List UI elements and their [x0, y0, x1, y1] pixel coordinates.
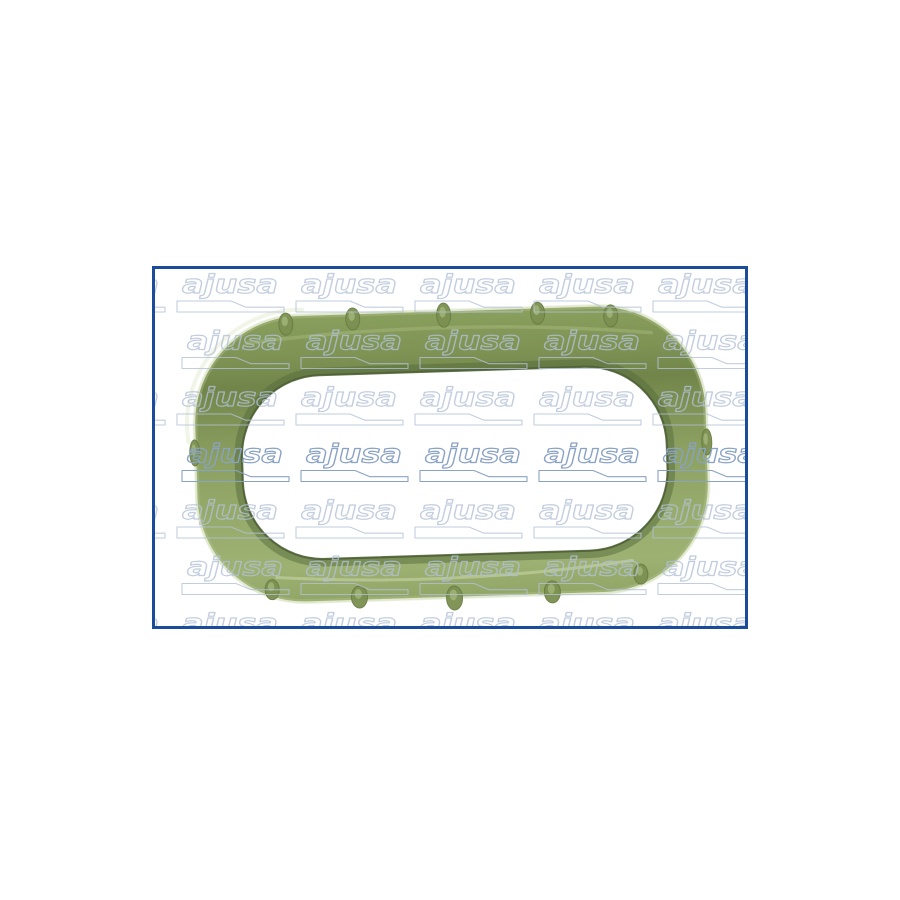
watermark-underline-swoosh	[539, 358, 646, 369]
watermark-underline-swoosh	[296, 527, 403, 538]
watermark-underline-swoosh	[658, 471, 745, 482]
watermark-underline-swoosh	[182, 471, 289, 482]
watermark-text: ajusa	[420, 383, 516, 413]
watermark-text: ajusa	[539, 609, 635, 626]
watermark-text: ajusa	[306, 327, 402, 357]
watermark-underline-swoosh	[177, 301, 284, 312]
watermark-underline-swoosh	[301, 358, 408, 369]
watermark-text: ajusa	[544, 440, 640, 470]
watermark-text: ajusa	[301, 383, 397, 413]
watermark-text: ajusa	[306, 440, 402, 470]
watermark-underline-swoosh	[415, 414, 522, 425]
ajusa-logo-watermark: ajusa	[301, 327, 408, 369]
watermark-underline-swoosh	[420, 358, 527, 369]
ajusa-logo-watermark: ajusa	[177, 383, 284, 425]
ajusa-logo-watermark: ajusa	[415, 270, 522, 312]
watermark-underline-swoosh	[415, 301, 522, 312]
watermark-underline-swoosh	[534, 301, 641, 312]
watermark-underline-swoosh	[155, 301, 165, 312]
ajusa-logo-watermark: ajusa	[155, 270, 165, 312]
ajusa-logo-watermark: ajusa	[155, 496, 165, 538]
watermark-text: ajusa	[182, 609, 278, 626]
ajusa-logo-watermark: ajusa	[415, 383, 522, 425]
ajusa-logo-watermark: ajusa	[296, 383, 403, 425]
watermark-text: ajusa	[539, 270, 635, 300]
ajusa-logo-watermark: ajusa	[182, 553, 289, 595]
watermark-text: ajusa	[658, 270, 745, 300]
watermark-text: ajusa	[663, 440, 745, 470]
watermark-underline-swoosh	[182, 584, 289, 595]
watermark-text: ajusa	[182, 496, 278, 526]
watermark-underline-swoosh	[182, 358, 289, 369]
ajusa-logo-watermark: ajusa	[415, 609, 522, 626]
watermark-underline-swoosh	[539, 584, 646, 595]
watermark-text: ajusa	[663, 327, 745, 357]
watermark-text: ajusa	[544, 553, 640, 583]
ajusa-logo-watermark: ajusa	[539, 553, 646, 595]
ajusa-logo-watermark: ajusa	[182, 440, 289, 482]
watermark-text: ajusa	[182, 270, 278, 300]
ajusa-logo-watermark: ajusa	[155, 383, 165, 425]
ajusa-logo-watermark: ajusa	[420, 327, 527, 369]
ajusa-logo-watermark: ajusa	[301, 553, 408, 595]
product-image-frame: ajusa ajusa ajusa ajusa ajusa ajusa ajus…	[152, 266, 748, 629]
ajusa-logo-watermark: ajusa	[653, 383, 745, 425]
watermark-text: ajusa	[663, 553, 745, 583]
ajusa-logo-watermark: ajusa	[539, 327, 646, 369]
watermark-text: ajusa	[306, 553, 402, 583]
watermark-text: ajusa	[425, 327, 521, 357]
watermark-text: ajusa	[420, 496, 516, 526]
watermark-text: ajusa	[539, 496, 635, 526]
watermark-text: ajusa	[658, 383, 745, 413]
ajusa-watermark-overlay: ajusa ajusa ajusa ajusa ajusa ajusa ajus…	[155, 269, 745, 626]
watermark-underline-swoosh	[658, 358, 745, 369]
ajusa-logo-watermark: ajusa	[534, 270, 641, 312]
watermark-underline-swoosh	[534, 527, 641, 538]
watermark-text: ajusa	[187, 553, 283, 583]
ajusa-logo-watermark: ajusa	[177, 609, 284, 626]
ajusa-logo-watermark: ajusa	[653, 609, 745, 626]
ajusa-logo-watermark: ajusa	[296, 496, 403, 538]
watermark-underline-swoosh	[653, 527, 745, 538]
ajusa-logo-watermark: ajusa	[658, 440, 745, 482]
watermark-underline-swoosh	[539, 471, 646, 482]
ajusa-logo-watermark: ajusa	[658, 553, 745, 595]
watermark-text: ajusa	[425, 553, 521, 583]
watermark-text: ajusa	[155, 609, 159, 626]
ajusa-logo-watermark: ajusa	[658, 327, 745, 369]
watermark-text: ajusa	[544, 327, 640, 357]
watermark-text: ajusa	[155, 383, 159, 413]
ajusa-logo-watermark: ajusa	[296, 609, 403, 626]
watermark-text: ajusa	[182, 383, 278, 413]
ajusa-logo-watermark: ajusa	[653, 496, 745, 538]
watermark-text: ajusa	[301, 609, 397, 626]
ajusa-logo-watermark: ajusa	[534, 496, 641, 538]
watermark-underline-swoosh	[155, 414, 165, 425]
watermark-text: ajusa	[301, 496, 397, 526]
watermark-text: ajusa	[155, 270, 159, 300]
watermark-text: ajusa	[187, 440, 283, 470]
watermark-text: ajusa	[539, 383, 635, 413]
watermark-text: ajusa	[425, 440, 521, 470]
watermark-text: ajusa	[301, 270, 397, 300]
watermark-underline-swoosh	[653, 301, 745, 312]
watermark-underline-swoosh	[177, 414, 284, 425]
watermark-underline-swoosh	[420, 584, 527, 595]
product-page: ajusa ajusa ajusa ajusa ajusa ajusa ajus…	[0, 0, 900, 900]
ajusa-logo-watermark: ajusa	[301, 440, 408, 482]
watermark-text: ajusa	[155, 496, 159, 526]
ajusa-logo-watermark: ajusa	[182, 327, 289, 369]
watermark-text: ajusa	[658, 609, 745, 626]
watermark-underline-swoosh	[177, 527, 284, 538]
watermark-underline-swoosh	[653, 414, 745, 425]
ajusa-logo-watermark: ajusa	[653, 270, 745, 312]
ajusa-logo-watermark: ajusa	[415, 496, 522, 538]
watermark-underline-swoosh	[534, 414, 641, 425]
ajusa-logo-watermark: ajusa	[420, 553, 527, 595]
ajusa-logo-watermark: ajusa	[539, 440, 646, 482]
watermark-underline-swoosh	[420, 471, 527, 482]
ajusa-logo-watermark: ajusa	[420, 440, 527, 482]
ajusa-logo-watermark: ajusa	[177, 270, 284, 312]
watermark-underline-swoosh	[301, 471, 408, 482]
watermark-underline-swoosh	[301, 584, 408, 595]
watermark-text: ajusa	[420, 270, 516, 300]
ajusa-logo-watermark: ajusa	[177, 496, 284, 538]
watermark-text: ajusa	[658, 496, 745, 526]
ajusa-logo-watermark: ajusa	[296, 270, 403, 312]
watermark-underline-swoosh	[415, 527, 522, 538]
ajusa-logo-watermark: ajusa	[534, 383, 641, 425]
watermark-text: ajusa	[187, 327, 283, 357]
ajusa-logo-watermark: ajusa	[534, 609, 641, 626]
watermark-underline-swoosh	[296, 301, 403, 312]
watermark-underline-swoosh	[658, 584, 745, 595]
watermark-underline-swoosh	[155, 527, 165, 538]
watermark-text: ajusa	[420, 609, 516, 626]
ajusa-logo-watermark: ajusa	[155, 609, 165, 626]
watermark-underline-swoosh	[296, 414, 403, 425]
